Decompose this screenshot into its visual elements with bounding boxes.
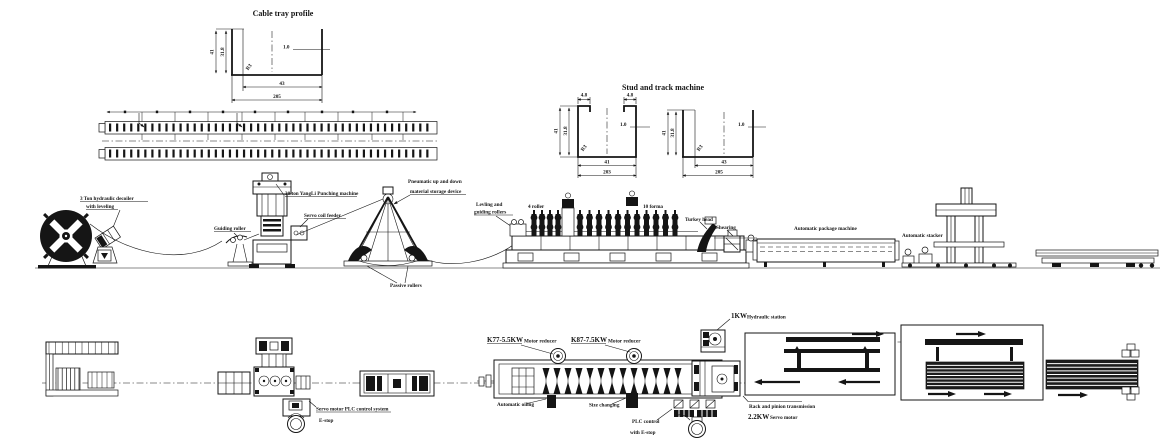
passive-rollers-label: Passive rollers bbox=[390, 283, 422, 289]
hydraulic-decoiler bbox=[38, 210, 96, 269]
stud-track-profiles-drawing: Stud and track machine 4.8 4.8 41 31.8 R… bbox=[554, 83, 767, 178]
output-stack-plan bbox=[1046, 344, 1139, 400]
dim-ct-width-inner: 43 bbox=[279, 81, 285, 87]
size-changing-label: Size changing bbox=[589, 403, 620, 409]
punching-mach bbox=[244, 173, 307, 268]
leveling-label-line2: guiding rollers bbox=[474, 210, 506, 216]
pendant-control-1 bbox=[283, 399, 310, 433]
automatic-stacker bbox=[902, 188, 1016, 268]
k77-label: K77-5.5KW bbox=[487, 336, 523, 344]
dim-st-thickness: 1.0 bbox=[620, 122, 627, 128]
guiding-roller-label: Guiding roller bbox=[214, 226, 246, 232]
dim-ct-width-total: 205 bbox=[273, 94, 281, 100]
storage-plan bbox=[360, 371, 434, 396]
storage-label-line1: Pneumatic up and down bbox=[408, 179, 462, 185]
dim-st-height: 41 bbox=[554, 128, 560, 134]
servo-plc-label: Servo motor PLC control system bbox=[316, 407, 389, 413]
shear-plan bbox=[692, 361, 740, 396]
hydraulic-station bbox=[701, 330, 725, 352]
dim-tr-height: 41 bbox=[662, 130, 668, 136]
dim-st-radius: R3 bbox=[580, 144, 589, 153]
ten-forma-label: 10 forma bbox=[643, 204, 663, 210]
servo-feeder-label: Servo coil feeder bbox=[304, 213, 342, 219]
package-machine-label: Automatic package machine bbox=[794, 226, 858, 232]
dim-tr-inner-height: 31.8 bbox=[670, 128, 676, 137]
shearing-label: Shearing bbox=[716, 225, 736, 231]
k87-sub-label: Motor reducer bbox=[608, 339, 641, 345]
plc-label-line1: PLC control bbox=[632, 419, 660, 425]
package-machine bbox=[753, 239, 899, 267]
plan-view: Servo motor PLC control system E-stop bbox=[42, 312, 1139, 438]
stacker-plan bbox=[901, 325, 1043, 400]
dim-tr-width-inner: 43 bbox=[721, 160, 727, 166]
dim-st-width-total: 203 bbox=[603, 170, 611, 176]
dim-ct-inner-height: 31.8 bbox=[220, 47, 226, 56]
decoiler-label-line2: with leveling bbox=[86, 204, 115, 210]
stud-track-title: Stud and track machine bbox=[622, 83, 704, 92]
servo-kw-label: 2.2KW bbox=[748, 413, 769, 421]
storage-label-line2: material storage device bbox=[410, 189, 462, 195]
cable-tray-profile-title: Cable tray profile bbox=[253, 9, 314, 18]
leveler-stand bbox=[93, 247, 117, 263]
plc-label-line2: with E-stop bbox=[630, 430, 656, 436]
dim-tr-thickness: 1.0 bbox=[738, 122, 745, 128]
dim-ct-radius: R3 bbox=[245, 63, 254, 72]
punching-label: 30 ton YangLi Punching machine bbox=[285, 191, 359, 197]
pendant-control-2 bbox=[676, 415, 706, 438]
drawing-svg: Cable tray profile 41 31.8 R3 1.0 43 205 bbox=[0, 0, 1170, 445]
dim-st-lip-left: 4.8 bbox=[581, 93, 588, 99]
k87-label: K87-7.5KW bbox=[571, 336, 607, 344]
elevation-view: 3 Ton hydraulic decoiler with leveling G… bbox=[35, 173, 1160, 289]
dim-tr-width-total: 205 bbox=[715, 170, 723, 176]
dim-ct-height: 41 bbox=[210, 49, 216, 55]
coil-car bbox=[95, 226, 121, 249]
dim-tr-radius: R3 bbox=[696, 144, 705, 153]
turkey-head-label: Turkey head bbox=[685, 217, 713, 223]
material-storage-device bbox=[296, 187, 521, 266]
dim-st-inner-height: 31.8 bbox=[563, 126, 569, 135]
guiding-roller bbox=[226, 235, 252, 266]
k77-sub-label: Motor reducer bbox=[524, 339, 557, 345]
cable-tray-profile-drawing: Cable tray profile 41 31.8 R3 1.0 43 205 bbox=[210, 9, 331, 103]
estop-label: E-stop bbox=[319, 418, 334, 424]
hydraulic-label: Hydraulic station bbox=[747, 315, 786, 321]
production-line-drawing: Cable tray profile 41 31.8 R3 1.0 43 205 bbox=[0, 0, 1170, 445]
dim-ct-thickness: 1.0 bbox=[283, 45, 290, 51]
decoiler-plan bbox=[46, 342, 118, 396]
hydraulic-kw-label: 1KW bbox=[731, 312, 747, 320]
four-roller-label: 4 roller bbox=[528, 204, 545, 210]
press-plan bbox=[218, 338, 310, 396]
decoiler-label-line1: 3 Ton hydraulic decoiler bbox=[80, 196, 134, 202]
former-plan bbox=[477, 349, 722, 409]
punched-strip-drawing bbox=[99, 111, 438, 160]
dim-st-lip-right: 4.8 bbox=[627, 93, 634, 99]
rack-pinion-label: Rack and pinion transmission bbox=[749, 404, 815, 410]
dim-st-width-inner: 41 bbox=[604, 160, 610, 166]
servo-motor-label: Servo motor bbox=[770, 415, 798, 421]
stacker-label: Automatic stacker bbox=[902, 233, 943, 239]
stacked-bundles bbox=[1036, 250, 1158, 268]
leveling-label-line1: Levling and bbox=[476, 202, 502, 208]
transmission-plan bbox=[745, 331, 895, 395]
